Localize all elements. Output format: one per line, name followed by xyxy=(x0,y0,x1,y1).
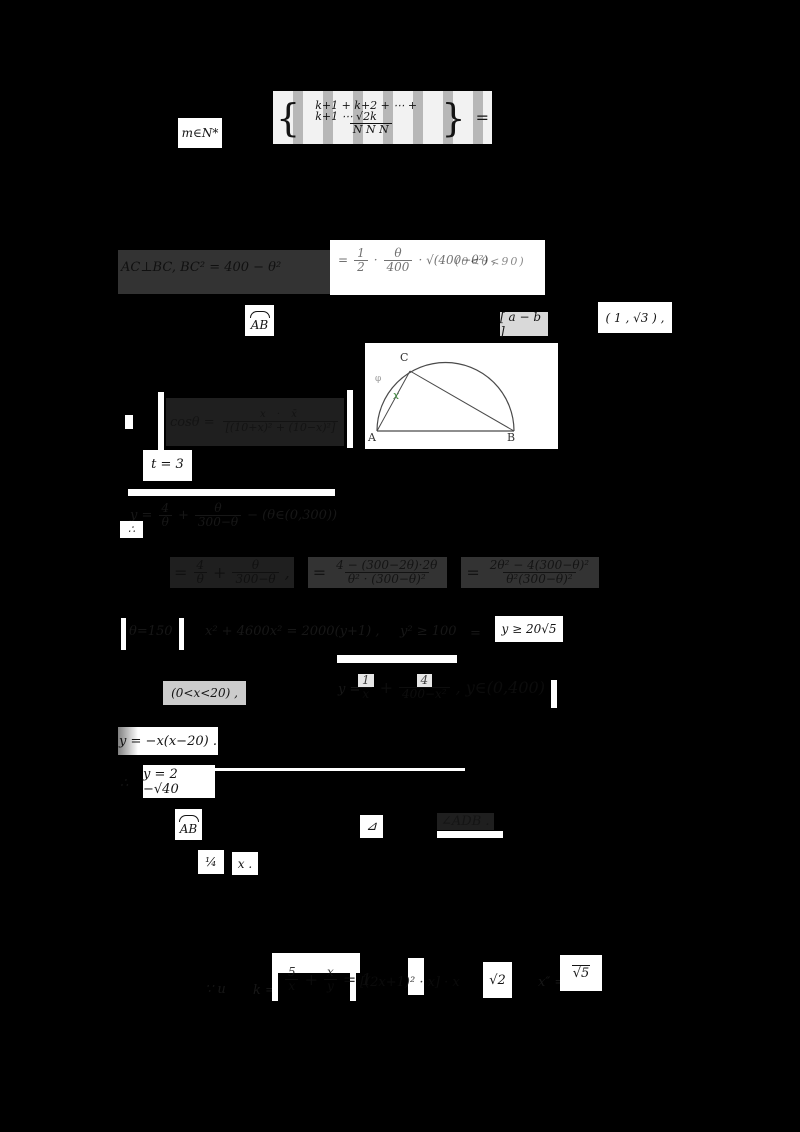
yprime-frac2: θ 300−θ xyxy=(195,502,241,528)
big-frac1: 4 θ xyxy=(193,559,207,585)
ab-with-arc-2: AB xyxy=(179,815,199,835)
cos-right-bracket-strip xyxy=(347,390,353,448)
range-0-x-20-patch: (0<x<20) , xyxy=(163,681,246,705)
arc-hat xyxy=(250,311,270,318)
sec2-frac-half: 1 2 xyxy=(354,247,368,273)
row672-frac2: 4 400−x² xyxy=(399,674,450,700)
root5-text: √5 xyxy=(572,965,591,981)
bottom-frac1: 5 x xyxy=(285,966,299,992)
angle-underline-bar xyxy=(437,831,503,838)
diagram-x-label: x xyxy=(393,389,399,402)
sec2-f2num: θ xyxy=(391,247,404,260)
big-f4num: 2θ² − 4(300−θ)² xyxy=(487,559,592,572)
cos-intro: cosθ = xyxy=(170,415,215,430)
a-minus-b-patch: [ a − b ] xyxy=(500,312,548,336)
cos-formula: cosθ = x · x̄ [(10+x)² + (10−x)²] xyxy=(166,398,344,446)
bottom-white-strip-1 xyxy=(272,953,278,1001)
big-frac2: θ 300−θ xyxy=(232,559,278,585)
cos-left-brace-strip xyxy=(158,392,164,450)
bottom-plus: + xyxy=(305,970,318,989)
sec2-dot: · xyxy=(374,253,378,267)
root5-patch: √5 xyxy=(560,955,602,991)
yprime-plus: + xyxy=(178,508,189,523)
big-plus: + xyxy=(213,563,226,582)
row672-plus: + xyxy=(380,678,393,697)
big-f3den: θ² · (300−θ)² xyxy=(345,572,429,586)
bottom-f2num: x xyxy=(324,966,337,979)
bracket-strip-right xyxy=(179,618,184,650)
therefore-patch: ∴ xyxy=(120,521,143,538)
angle-adb: ∠ADB . xyxy=(437,813,494,830)
y-neg-x-patch: y = −x(x−20) . xyxy=(118,727,218,755)
yprime-row: y = 4 θ + θ 300−θ − (θ∈(0,300)) xyxy=(130,498,337,532)
big-eq3: = xyxy=(466,563,479,582)
top-open-brace: { xyxy=(276,99,300,137)
row620-eq-ghost: = xyxy=(470,626,481,641)
row672-f2num: 4 xyxy=(417,674,433,687)
y-min-text: y = 2 −√40 xyxy=(143,767,215,797)
row672-fractions: 1 x + 4 400−x² , y∈(0,400) . xyxy=(356,666,555,708)
arc-ab-patch-2: AB xyxy=(175,809,202,840)
big-f2den: 300−θ xyxy=(232,572,278,586)
bottom-f1den: x xyxy=(285,979,298,993)
root2-patch: √2 xyxy=(483,962,512,998)
top-close-brace: } xyxy=(441,99,465,137)
cos-frac-num: x · x̄ xyxy=(257,410,304,421)
yprime-tail: − (θ∈(0,300)) xyxy=(247,508,337,523)
triangle-symbol-patch: ⊿ xyxy=(360,815,383,838)
big-f2num: θ xyxy=(249,559,262,572)
theta-150-ghost: θ=150 xyxy=(129,624,173,639)
y-ge-20root5-text: y ≥ 20√5 xyxy=(501,622,556,636)
big-f3num: 4 − (300−2θ)·2θ xyxy=(333,559,440,572)
row672-f1den: x xyxy=(359,687,372,701)
big-frac3: 4 − (300−2θ)·2θ θ² · (300−θ)² xyxy=(333,559,440,585)
t-equals-3-patch: t = 3 xyxy=(143,450,192,478)
yprime-f1den: θ xyxy=(159,515,172,529)
sec2-eq: = xyxy=(338,253,348,267)
a-minus-b-text: [ a − b ] xyxy=(500,310,548,338)
diagram-phi-mark: φ xyxy=(375,374,381,384)
big-eq2: = xyxy=(313,563,326,582)
row620-ge-ghost: y² ≥ 100 xyxy=(400,624,457,639)
yprime-f1num: 4 xyxy=(158,502,172,515)
one-root3-patch: ( 1 , √3 ) , xyxy=(598,302,672,333)
y-neg-x-text: y = −x(x−20) . xyxy=(119,734,217,749)
x-patch: x . xyxy=(232,852,258,875)
derivative-chunk-1: = 4 θ + θ 300−θ , xyxy=(170,557,294,587)
top-label-text: m∈N* xyxy=(182,126,219,140)
row765-pre-ghost: ∴ xyxy=(120,776,128,791)
therefore-symbol: ∴ xyxy=(128,523,135,536)
formula-top-label: m∈N* xyxy=(178,118,222,148)
bottom-f1num: 5 xyxy=(285,966,299,979)
cos-brace-nub xyxy=(125,415,133,429)
yprime-f2num: θ xyxy=(211,502,224,515)
geometry-diagram: C A B x φ xyxy=(365,343,558,449)
row672-f1num: 1 xyxy=(358,674,374,687)
x-text: x . xyxy=(238,857,252,871)
diagram-point-a-label: A xyxy=(368,431,376,444)
quarter-patch: ¼ xyxy=(198,850,224,874)
bottom-intro-ghost: ∵ u xyxy=(205,982,226,997)
big-f1num: 4 xyxy=(193,559,207,572)
big-frac4: 2θ² − 4(300−θ)² θ²(300−θ)² xyxy=(487,559,592,585)
section2-range: (0<θ<90) xyxy=(455,255,526,268)
top-fraction-numerator: k+1 + k+2 + ⋯ + k+1 ⋯ √2k xyxy=(312,100,429,123)
diagram-point-b-label: B xyxy=(507,431,515,444)
big-f1den: θ xyxy=(194,572,207,586)
ab-text-2: AB xyxy=(180,823,197,835)
math-solution-page: m∈N* { k+1 + k+2 + ⋯ + k+1 ⋯ √2k N N N }… xyxy=(0,0,800,1132)
arc-hat-2 xyxy=(179,815,199,822)
top-fraction: k+1 + k+2 + ⋯ + k+1 ⋯ √2k N N N xyxy=(312,100,429,136)
range-0-x-20-text: (0<x<20) , xyxy=(171,686,238,700)
derivative-chunk-2: = 4 − (300−2θ)·2θ θ² · (300−θ)² xyxy=(308,557,448,587)
quarter-text: ¼ xyxy=(205,855,217,869)
row620-mid-ghost: x² + 4600x² = 2000(y+1) , xyxy=(205,624,379,639)
bracket-strip-left xyxy=(121,618,126,650)
cos-fraction: x · x̄ [(10+x)² + (10−x)²] xyxy=(223,410,339,433)
row672-f2den: 400−x² xyxy=(399,687,450,701)
top-equals: = xyxy=(476,108,489,127)
one-root3-text: ( 1 , √3 ) , xyxy=(606,311,665,325)
y-ge-20root5-patch: y ≥ 20√5 xyxy=(495,616,563,642)
derivative-chunk-3: = 2θ² − 4(300−θ)² θ²(300−θ)² xyxy=(461,557,599,587)
arc-ab-patch-1: AB xyxy=(245,305,274,336)
formula-top-main: { k+1 + k+2 + ⋯ + k+1 ⋯ √2k N N N } = xyxy=(273,91,492,144)
diagram-point-c-label: C xyxy=(400,351,408,364)
bottom-frac2: x y xyxy=(324,966,337,992)
t3-underline xyxy=(143,477,192,481)
y-min-patch: y = 2 −√40 xyxy=(143,765,215,798)
row672-tail: , y∈(0,400) . xyxy=(456,678,556,697)
big-eq1: = xyxy=(174,563,187,582)
triangle-symbol: ⊿ xyxy=(366,819,377,834)
sec2-f1den: 2 xyxy=(354,260,368,274)
row672-frac1: 1 x xyxy=(358,674,374,700)
bottom-f2den: y xyxy=(324,979,337,993)
bottom-fractions: 5 x + x y = 1 xyxy=(283,958,372,1000)
divider-bar-1 xyxy=(128,489,335,496)
sec2-frac-theta: θ 400 xyxy=(384,247,413,273)
yprime-frac1: 4 θ xyxy=(158,502,172,528)
sec2-f1num: 1 xyxy=(354,247,368,260)
root2-text: √2 xyxy=(489,973,506,988)
ab-with-arc: AB xyxy=(250,311,270,331)
t-equals-3-text: t = 3 xyxy=(151,457,184,472)
yprime-f2den: 300−θ xyxy=(195,515,241,529)
big-f4den: θ²(300−θ)² xyxy=(503,572,575,586)
row672-end-strip xyxy=(551,680,557,708)
sec2-f2den: 400 xyxy=(384,260,413,274)
section2-left-formula: AC⊥BC, BC² = 400 − θ² xyxy=(121,260,281,275)
cos-frac-den: [(10+x)² + (10−x)²] xyxy=(223,421,339,434)
ab-text: AB xyxy=(251,319,268,331)
bottom-bracket-expr: [(2x+1)² · x] · x xyxy=(360,975,460,990)
derivative-row: = 4 θ + θ 300−θ , = 4 − (300−2θ)·2θ θ² ·… xyxy=(170,545,599,600)
big-comma: , xyxy=(285,563,290,582)
top-fraction-denominator: N N N xyxy=(350,123,392,136)
divider-bar-2 xyxy=(337,655,457,663)
